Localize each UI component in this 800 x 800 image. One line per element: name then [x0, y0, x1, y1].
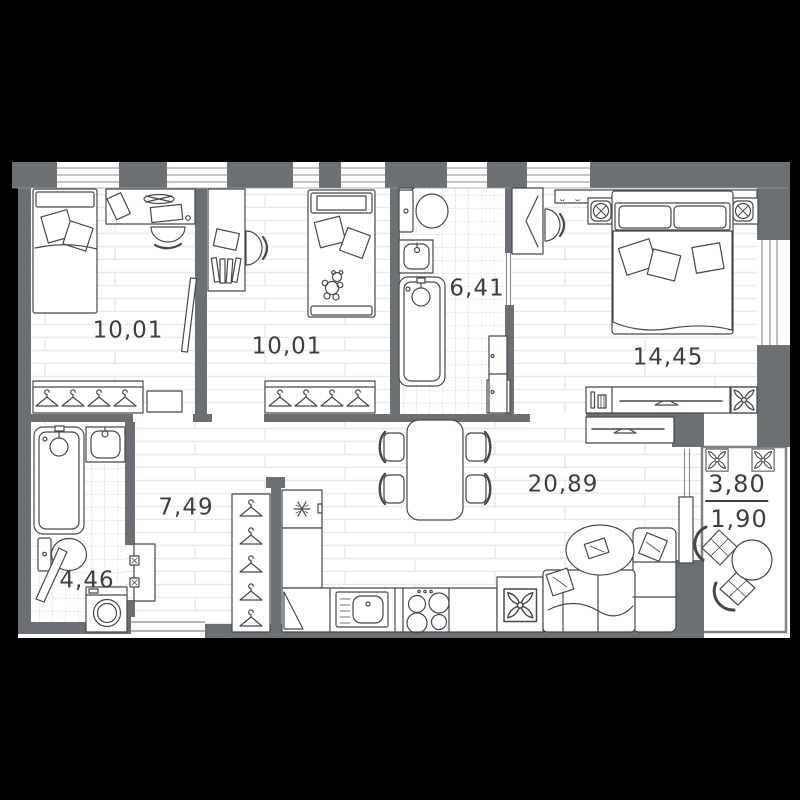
kitchen-counter-icon	[282, 588, 497, 632]
storage-cabinet-icon	[489, 336, 507, 413]
fridge-icon	[282, 490, 322, 528]
room-label-balcony-total: 3,80	[705, 472, 768, 502]
plant-icon	[731, 387, 757, 413]
washbasin-icon	[399, 240, 433, 273]
entrance-door-icon	[131, 617, 205, 634]
crib-bed-icon	[308, 190, 375, 317]
cabinet-icon	[147, 391, 182, 412]
kitchen-cabinet-icon	[282, 528, 322, 588]
wardrobe-hangers-icon	[232, 494, 270, 632]
room-label-toilet-bathroom: 4,46	[59, 570, 114, 593]
plant-icon	[706, 449, 728, 471]
floor-plan-canvas	[0, 0, 800, 800]
plant-icon	[752, 449, 774, 471]
desk-icon	[106, 189, 195, 224]
desk-icon	[208, 189, 245, 291]
washbasin-icon	[86, 427, 125, 462]
washing-machine-icon	[86, 587, 127, 632]
wardrobe-hangers-icon	[265, 381, 375, 413]
rug-icon	[566, 525, 634, 575]
single-bed-icon	[33, 189, 97, 313]
bathtub-icon	[34, 426, 84, 534]
desk-icon	[512, 188, 543, 254]
plant-icon	[497, 577, 543, 632]
floor-plan: 10,01 10,01 6,41 14,45 7,49 4,46 20,89 3…	[0, 0, 800, 800]
room-label-bedroom-3: 14,45	[633, 347, 704, 370]
double-bed-icon	[612, 191, 733, 334]
kitchen-sink-icon	[336, 592, 388, 627]
dining-table-icon	[407, 420, 463, 520]
bench-icon	[130, 544, 155, 601]
tv-dresser-icon	[586, 387, 757, 413]
room-label-balcony-reduced: 1,90	[710, 507, 767, 531]
bathtub-icon	[399, 277, 445, 386]
wardrobe-hangers-icon	[33, 381, 143, 413]
room-label-kitchen-living: 20,89	[528, 474, 599, 497]
room-label-bedroom-2: 10,01	[252, 336, 323, 359]
room-label-hallway: 7,49	[158, 497, 213, 520]
tv-stand-icon	[586, 417, 674, 443]
balcony-door-icon	[679, 497, 693, 563]
cafe-table-icon	[732, 540, 772, 580]
room-label-bedroom-1: 10,01	[93, 320, 164, 343]
room-label-bathroom: 6,41	[449, 278, 504, 301]
